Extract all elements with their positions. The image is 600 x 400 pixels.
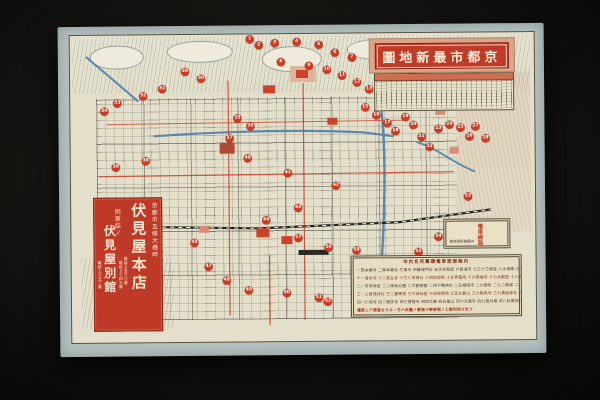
numbered-marker: 45 (190, 239, 198, 247)
numbered-marker: 28 (482, 134, 490, 142)
numbered-marker: 12 (353, 78, 361, 86)
numbered-marker: 39 (112, 164, 120, 172)
landmark-block (281, 236, 292, 244)
numbered-marker: 27 (471, 122, 479, 130)
numbered-marker: 11 (338, 72, 346, 80)
bekkan-phone: 電話上七五二番 (97, 261, 103, 289)
numbered-marker: 51 (315, 294, 323, 302)
numbered-marker: 41 (284, 169, 292, 177)
landmark-block (256, 228, 269, 237)
tram-line-station (270, 255, 271, 325)
numbered-marker: 33 (113, 100, 121, 108)
numbered-marker: 13 (365, 85, 373, 93)
numbered-marker: 50 (283, 289, 291, 297)
landmark-block (220, 143, 235, 154)
numbered-marker: 8 (277, 58, 285, 66)
tram-line-ew-2 (106, 120, 408, 125)
numbered-marker: 30 (197, 75, 205, 83)
numbered-marker: 37 (226, 135, 234, 143)
street-index-table (374, 72, 514, 111)
numbered-marker: 19 (401, 113, 409, 121)
numbered-marker: 1 (246, 35, 254, 43)
numbered-marker: 54 (434, 233, 442, 241)
numbered-marker: 35 (233, 115, 241, 123)
river-northwest (86, 56, 138, 101)
key-note: 乘換場所御案内 (449, 239, 489, 244)
landmark-block (299, 250, 329, 255)
numbered-marker: 29 (181, 68, 189, 76)
numbered-marker: 42 (332, 182, 340, 190)
numbered-marker: 23 (434, 125, 442, 133)
numbered-marker: 18 (391, 127, 399, 135)
landmark-block (327, 118, 337, 125)
numbered-marker: 57 (294, 234, 302, 242)
numbered-marker: 22 (426, 143, 434, 151)
numbered-marker: 43 (294, 204, 302, 212)
numbered-marker: 48 (223, 277, 231, 285)
numbered-marker: 6 (331, 49, 339, 57)
honten-name: 伏見屋本店 (128, 202, 150, 326)
honten-address: 京都市五條大橋畔 (149, 202, 158, 258)
numbered-marker: 3 (271, 39, 279, 47)
numbered-marker: 36 (246, 122, 254, 130)
map-title-text: 圖地新最市都京 (377, 44, 506, 68)
canal-center (153, 130, 393, 138)
numbered-marker: 20 (409, 121, 417, 129)
numbered-marker: 26 (466, 133, 474, 141)
landmark-block (263, 85, 275, 93)
numbered-marker: 9 (305, 62, 313, 70)
numbered-marker: 7 (348, 54, 356, 62)
map-paper: 1234567891011121314151617181920212223242… (58, 23, 547, 357)
numbered-marker: 25 (456, 124, 464, 132)
landmark-block (199, 226, 209, 233)
numbered-marker: 52 (324, 298, 332, 306)
tram-key-box: 電車線路 乘換場所御案内 (443, 218, 510, 249)
legend-rows: 一西本願寺 二東本願寺 三東寺 四羅城門址 五伏見稻荷 六泉涌寺 七三十三間堂 … (357, 265, 516, 314)
numbered-marker: 47 (205, 263, 213, 271)
numbered-marker: 10 (323, 66, 331, 74)
numbered-marker: 53 (464, 193, 472, 201)
numbered-marker: 44 (262, 216, 270, 224)
numbered-marker: 17 (383, 119, 391, 127)
numbered-marker: 2 (255, 41, 263, 49)
numbered-marker: 32 (139, 92, 147, 100)
landmark-block (296, 70, 308, 78)
numbered-marker: 58 (352, 246, 360, 254)
tram-line-ew-1 (99, 172, 454, 177)
numbered-marker: 24 (445, 121, 453, 129)
legend-row: 電車ニテ周遊セラルヽ方ハ本圖ノ番號ヲ御參照ノ上御利用ヲ乞フ (357, 305, 516, 314)
landmark-block (450, 147, 459, 154)
numbered-marker: 5 (315, 41, 323, 49)
tram-line-ns-2 (303, 83, 305, 320)
numbered-marker: 49 (245, 286, 253, 294)
index-table-columns (376, 80, 512, 109)
numbered-marker: 38 (142, 157, 150, 165)
numbered-marker: 31 (158, 85, 166, 93)
numbered-marker: 15 (361, 103, 369, 111)
bekkan-name: 伏見屋別館 (101, 225, 119, 325)
numbered-marker: 40 (244, 154, 252, 162)
numbered-marker: 21 (418, 133, 426, 141)
fushimiya-ad-banner: 京都市五條大橋畔 伏見屋本店 電話上五三六番 電話上七四九番 同東詰ノ 伏見屋別… (93, 197, 163, 332)
numbered-marker: 4 (293, 38, 301, 46)
numbered-marker: 34 (100, 108, 108, 116)
numbered-marker: 56 (324, 244, 332, 252)
numbered-marker: 16 (372, 111, 380, 119)
map-title-banner: 圖地新最市都京 (375, 42, 509, 69)
sights-legend-box: 市内名所舊蹟電車筋御案内 一西本願寺 二東本願寺 三東寺 四羅城門址 五伏見稻荷… (351, 254, 523, 317)
title-panel: 圖地新最市都京 (369, 37, 515, 73)
railway-line (114, 209, 491, 229)
